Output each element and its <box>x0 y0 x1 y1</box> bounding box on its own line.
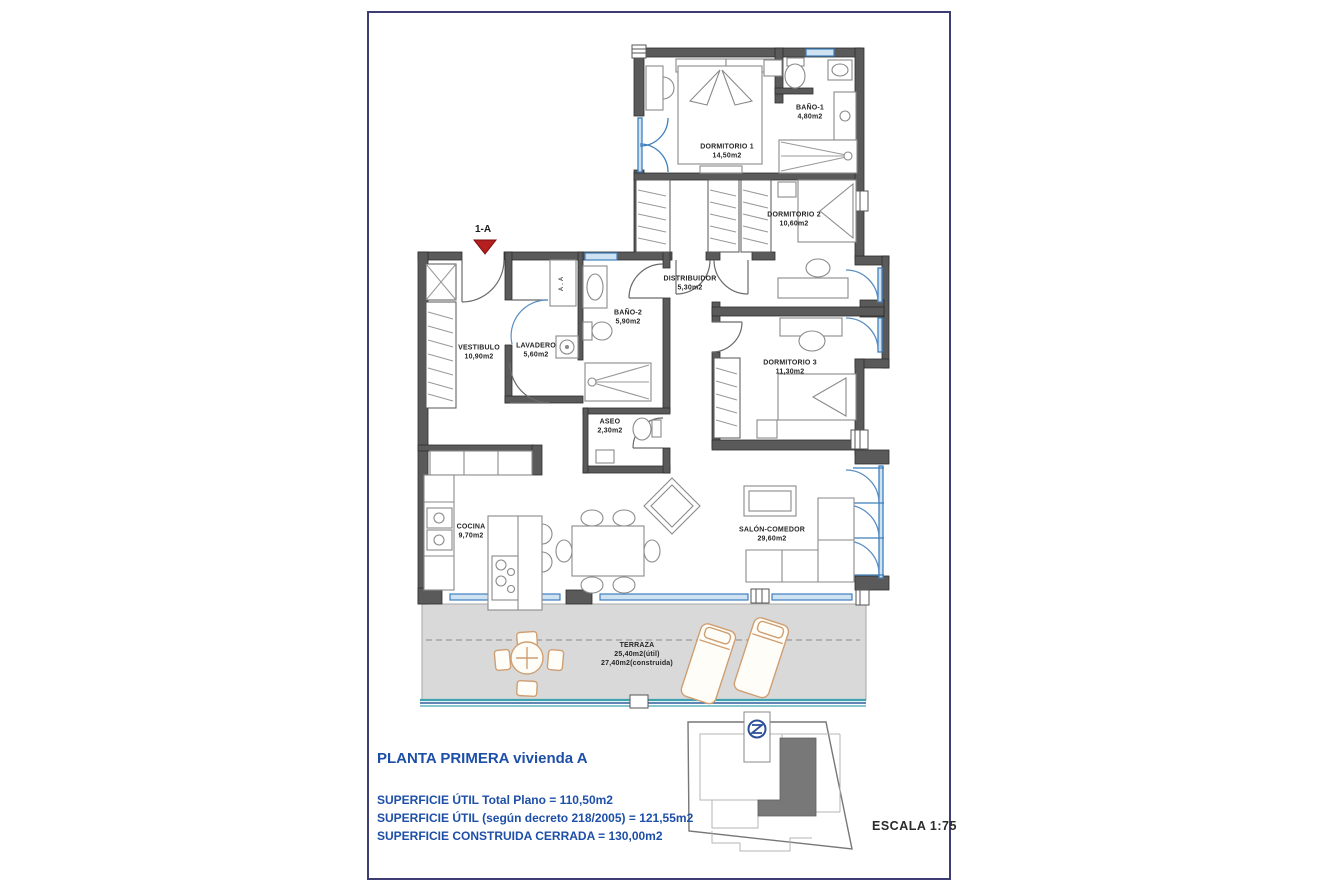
room-label-lavadero: LAVADERO5,60m2 <box>516 342 556 360</box>
room-label-dormitorio-1: DORMITORIO 114,50m2 <box>700 143 754 161</box>
dining-set <box>556 510 660 593</box>
room-label-dormitorio-3: DORMITORIO 311,30m2 <box>763 359 817 377</box>
superficie-construida: SUPERFICIE CONSTRUIDA CERRADA = 130,00m2 <box>377 829 663 843</box>
site-key-map <box>688 712 852 851</box>
plan-title: PLANTA PRIMERA vivienda A <box>377 750 588 767</box>
desk-dorm3 <box>780 318 842 351</box>
desk-dorm1 <box>646 66 674 110</box>
room-label-cocina: COCINA9,70m2 <box>457 523 486 541</box>
room-label-terraza: TERRAZA 25,40m2(útil) 27,40m2(construida… <box>599 642 675 668</box>
scale-label: ESCALA 1:75 <box>872 819 957 833</box>
room-label-salon-comedor: SALÓN-COMEDOR29,60m2 <box>739 526 805 544</box>
room-label-bano-2: BAÑO-25,90m2 <box>614 309 642 327</box>
room-label-vestibulo: VESTIBULO10,90m2 <box>458 344 500 362</box>
unit-marker-triangle <box>474 240 496 254</box>
terrace-column <box>630 695 648 708</box>
bed-dorm3 <box>757 374 856 438</box>
ac-unit-label: A.A <box>559 275 565 291</box>
french-door-dorm1 <box>638 118 668 172</box>
superficie-util-total: SUPERFICIE ÚTIL Total Plano = 110,50m2 <box>377 793 613 807</box>
unit-marker-label: 1-A <box>475 224 491 235</box>
compass-icon <box>749 721 766 738</box>
room-label-aseo: ASEO2,30m2 <box>598 418 623 436</box>
room-label-distribuidor: DISTRIBUIDOR5,30m2 <box>664 275 717 293</box>
superficie-util-decreto: SUPERFICIE ÚTIL (según decreto 218/2005)… <box>377 811 693 825</box>
room-label-dormitorio-2: DORMITORIO 210,60m2 <box>767 211 821 229</box>
desk-dorm2 <box>778 259 848 298</box>
bath2-fixtures <box>583 266 651 401</box>
plan-document: { "sheet": { "unit_label": "1-A", "scale… <box>0 0 1320 895</box>
floorplan-drawing <box>0 0 1320 895</box>
room-label-bano-1: BAÑO-14,80m2 <box>796 104 824 122</box>
